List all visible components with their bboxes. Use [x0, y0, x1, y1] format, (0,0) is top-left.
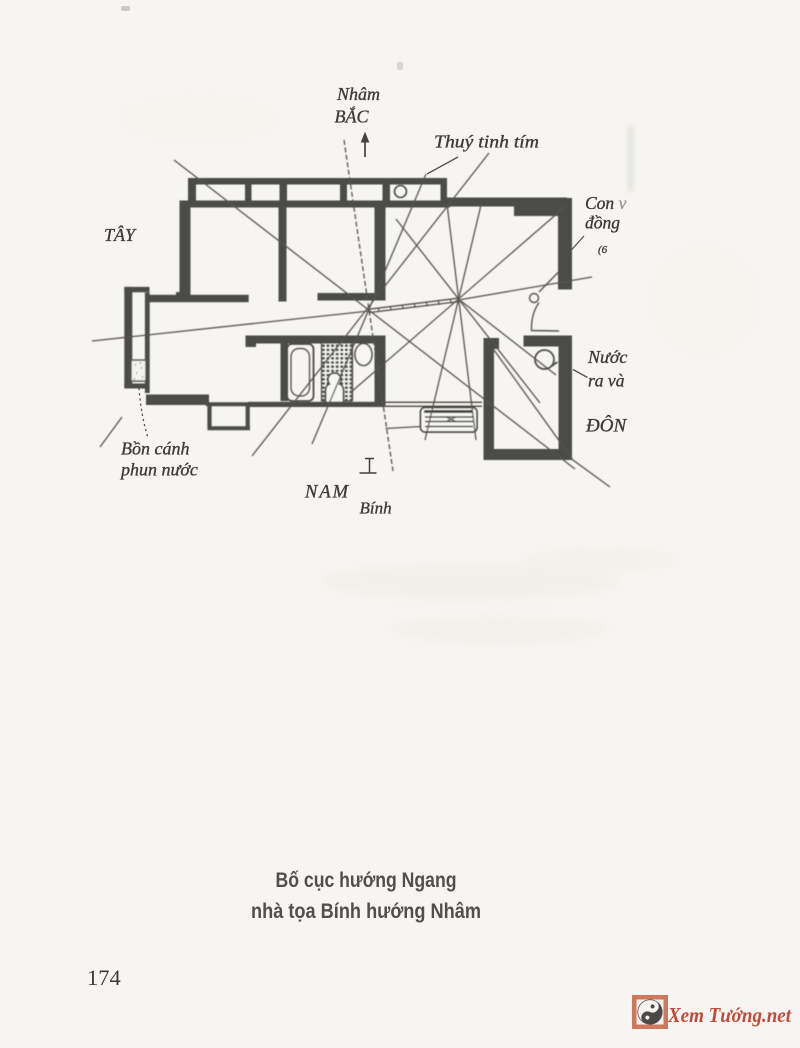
svg-text:Nước: Nước	[587, 347, 627, 367]
svg-text:BẮC: BẮC	[335, 106, 370, 127]
svg-text:Nhâm: Nhâm	[336, 84, 380, 104]
svg-text:(6: (6	[598, 244, 608, 256]
svg-text:Bính: Bính	[360, 499, 392, 518]
svg-text:Con v: Con v	[585, 193, 627, 213]
svg-text:174: 174	[87, 965, 121, 990]
svg-text:nhà tọa Bính hướng Nhâm: nhà tọa Bính hướng Nhâm	[251, 899, 481, 923]
svg-text:Thuý tinh tím: Thuý tinh tím	[434, 132, 539, 152]
svg-text:Xem Tướng.net: Xem Tướng.net	[667, 1003, 792, 1027]
svg-text:đồng: đồng	[585, 213, 620, 233]
svg-text:TÂY: TÂY	[104, 224, 137, 245]
svg-text:NAM: NAM	[304, 483, 350, 503]
svg-text:Bố cục hướng Ngang: Bố cục hướng Ngang	[276, 868, 457, 892]
svg-text:Bồn cánh: Bồn cánh	[121, 439, 189, 459]
svg-text:ra và: ra và	[588, 371, 625, 391]
svg-text:phun nước: phun nước	[119, 460, 198, 480]
svg-text:ĐÔN: ĐÔN	[585, 415, 627, 437]
